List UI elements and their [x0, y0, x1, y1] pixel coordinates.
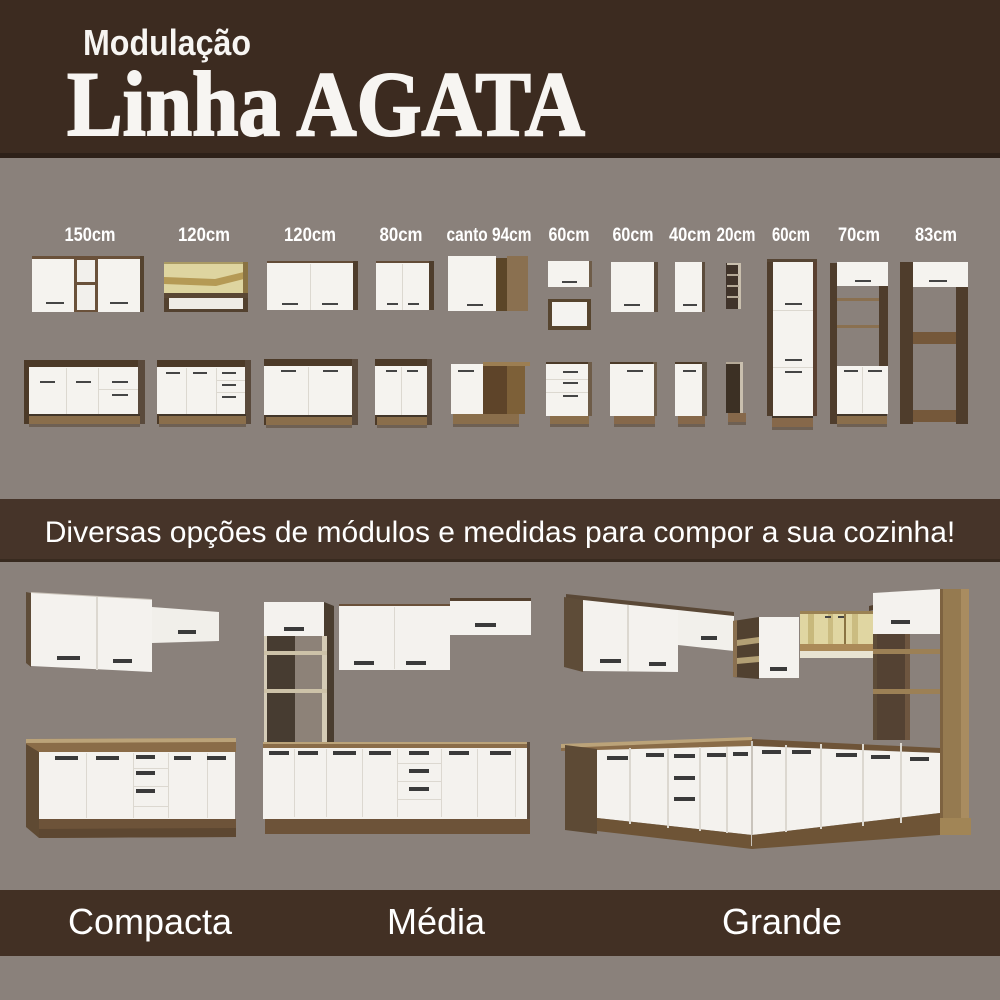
svg-text:120cm: 120cm — [284, 225, 336, 246]
svg-text:150cm: 150cm — [65, 225, 116, 246]
svg-text:70cm: 70cm — [838, 225, 880, 246]
svg-text:40cm: 40cm — [669, 225, 711, 246]
svg-text:Média: Média — [387, 901, 486, 942]
svg-text:80cm: 80cm — [380, 225, 423, 246]
svg-text:20cm: 20cm — [717, 225, 756, 246]
svg-text:83cm: 83cm — [915, 225, 957, 246]
svg-text:Linha AGATA: Linha AGATA — [67, 53, 585, 155]
svg-text:canto 94cm: canto 94cm — [447, 225, 532, 246]
svg-text:60cm: 60cm — [613, 225, 654, 246]
svg-text:60cm: 60cm — [772, 225, 810, 246]
svg-text:Diversas opções de módulos e m: Diversas opções de módulos e medidas par… — [45, 516, 956, 549]
svg-text:Compacta: Compacta — [68, 901, 233, 942]
svg-text:60cm: 60cm — [549, 225, 590, 246]
svg-text:Grande: Grande — [722, 901, 842, 942]
svg-text:120cm: 120cm — [178, 225, 230, 246]
